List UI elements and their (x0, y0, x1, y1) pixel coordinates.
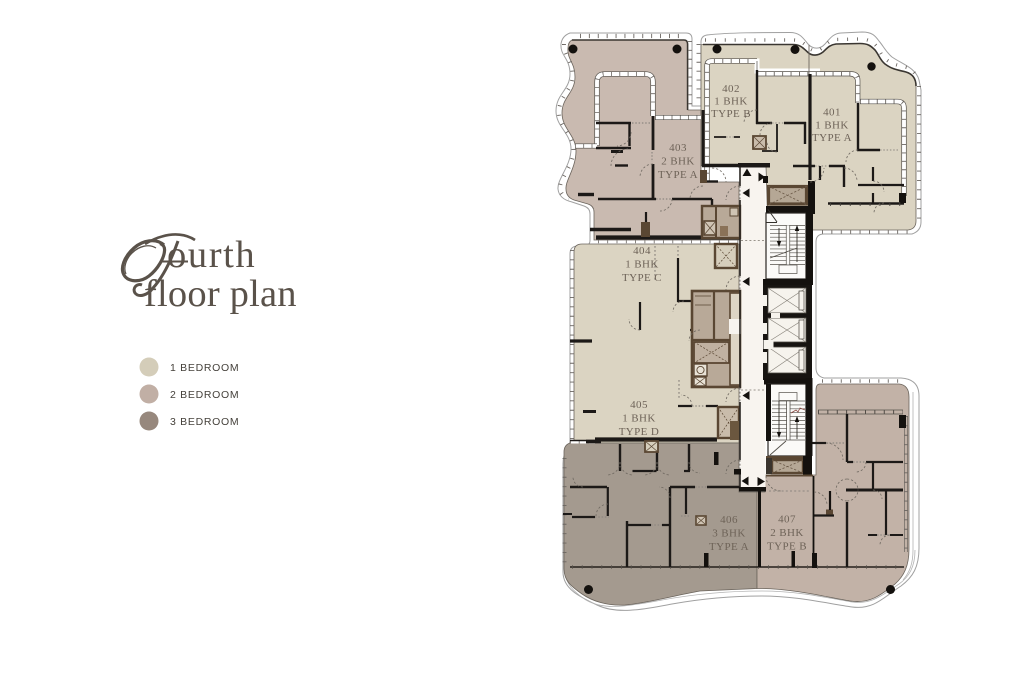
svg-text:1 BHK: 1 BHK (625, 259, 658, 271)
svg-text:3 BEDROOM: 3 BEDROOM (170, 416, 239, 428)
svg-text:TYPE C: TYPE C (622, 272, 662, 284)
svg-text:1 BEDROOM: 1 BEDROOM (170, 362, 239, 374)
svg-text:floor plan: floor plan (144, 273, 297, 315)
svg-text:TYPE B: TYPE B (711, 108, 751, 120)
svg-text:TYPE D: TYPE D (619, 426, 660, 438)
svg-text:407: 407 (778, 514, 796, 526)
svg-text:2 BHK: 2 BHK (661, 156, 694, 168)
svg-text:TYPE A: TYPE A (709, 541, 749, 553)
svg-text:402: 402 (722, 83, 740, 95)
svg-text:TYPE A: TYPE A (658, 169, 698, 181)
svg-text:401: 401 (823, 107, 841, 119)
svg-text:2 BEDROOM: 2 BEDROOM (170, 389, 239, 401)
svg-text:TYPE A: TYPE A (812, 132, 852, 144)
svg-text:403: 403 (669, 142, 687, 154)
svg-text:ourth: ourth (167, 234, 256, 276)
svg-text:405: 405 (630, 399, 648, 411)
svg-text:TYPE B: TYPE B (767, 541, 807, 553)
svg-text:2 BHK: 2 BHK (770, 527, 803, 539)
svg-text:1 BHK: 1 BHK (714, 96, 747, 108)
svg-text:3 BHK: 3 BHK (712, 528, 745, 540)
svg-text:406: 406 (720, 514, 738, 526)
svg-text:1 BHK: 1 BHK (622, 413, 655, 425)
svg-text:1 BHK: 1 BHK (815, 120, 848, 132)
svg-text:404: 404 (633, 245, 651, 257)
